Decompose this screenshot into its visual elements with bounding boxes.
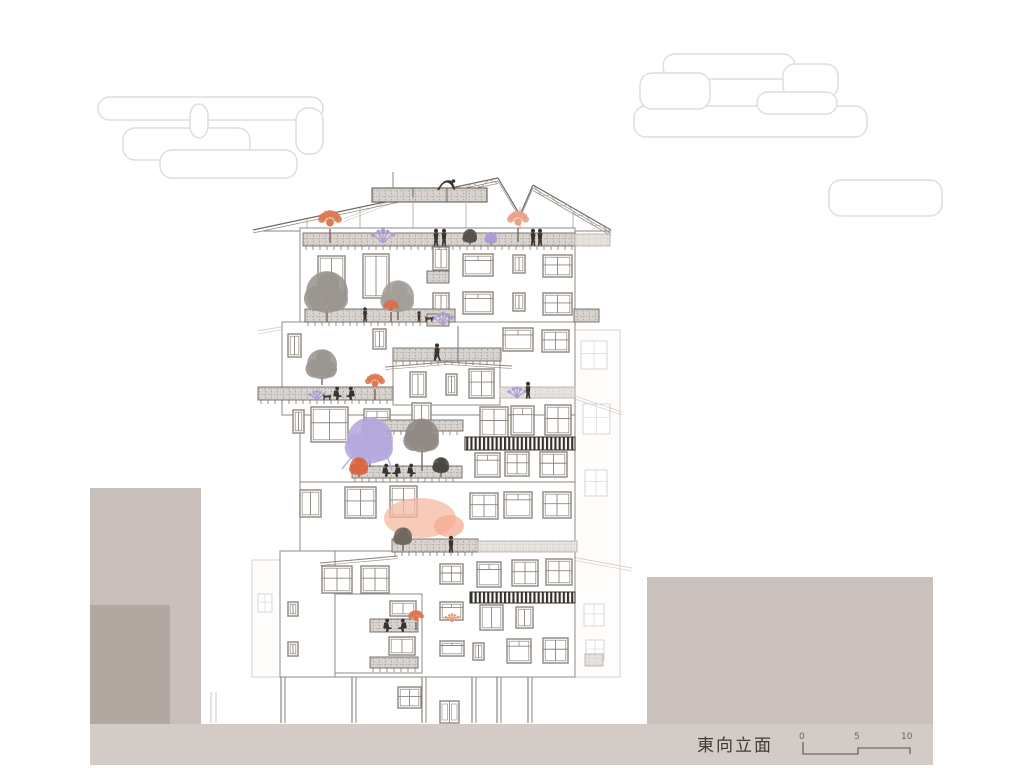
window <box>440 564 463 584</box>
window <box>477 562 501 587</box>
rooftop-box <box>372 188 487 202</box>
window <box>504 492 532 518</box>
window <box>433 247 449 270</box>
window <box>463 254 493 276</box>
window <box>475 453 500 477</box>
window <box>293 410 304 433</box>
window <box>446 374 457 395</box>
window <box>322 566 352 593</box>
balcony-balustrade <box>258 387 393 400</box>
window <box>473 643 484 660</box>
drawing-title: 東向立面 <box>697 731 773 756</box>
neighbor-mass-1 <box>90 605 170 724</box>
window <box>373 329 386 349</box>
balcony-balustrade <box>427 271 449 283</box>
neighbor-mass-2 <box>647 577 933 725</box>
entrance-door <box>440 701 459 723</box>
cloud-left <box>98 97 323 178</box>
ground-band <box>90 724 933 765</box>
cloud-right <box>634 54 867 137</box>
window <box>361 566 389 593</box>
window <box>513 255 525 273</box>
window <box>512 560 538 586</box>
roof-assembly <box>253 172 611 236</box>
balcony-balustrade <box>370 619 418 632</box>
window <box>503 328 533 351</box>
window <box>311 407 348 442</box>
balcony-balustrade <box>370 657 418 668</box>
window <box>288 602 298 616</box>
scalebar-label-10: 10 <box>901 732 912 742</box>
window <box>440 641 464 656</box>
window <box>480 407 508 437</box>
clouds-layer <box>98 54 942 216</box>
balcony-balustrade <box>393 348 501 361</box>
window <box>288 334 301 357</box>
window <box>516 607 533 628</box>
window <box>480 605 503 630</box>
window <box>463 292 493 314</box>
window <box>398 687 421 708</box>
window <box>543 638 568 663</box>
window <box>470 493 498 519</box>
window <box>469 369 494 398</box>
striped-awning <box>465 437 575 450</box>
window <box>300 490 321 517</box>
window <box>507 639 531 663</box>
window <box>288 642 298 656</box>
blob-tree <box>434 515 464 537</box>
striped-awning <box>470 592 575 603</box>
window <box>546 559 572 585</box>
window <box>513 293 525 311</box>
window <box>389 637 415 655</box>
scalebar-label-5: 5 <box>854 732 860 742</box>
window <box>543 293 572 315</box>
window <box>410 372 426 397</box>
window <box>511 406 534 435</box>
window <box>542 330 569 352</box>
balcony-balustrade <box>478 541 577 552</box>
balcony-balustrade <box>575 234 610 246</box>
window <box>540 452 567 477</box>
window <box>545 405 571 435</box>
scalebar-label-0: 0 <box>799 732 805 742</box>
window <box>505 452 529 476</box>
elevation-drawing <box>0 0 1024 768</box>
elevation-sheet: 東向立面 0 5 10 <box>0 0 1024 768</box>
window <box>543 492 571 518</box>
balcony-balustrade <box>585 654 603 666</box>
window <box>345 487 376 518</box>
window <box>543 255 572 277</box>
balcony-balustrade <box>574 309 599 322</box>
cloud-small <box>829 180 942 216</box>
